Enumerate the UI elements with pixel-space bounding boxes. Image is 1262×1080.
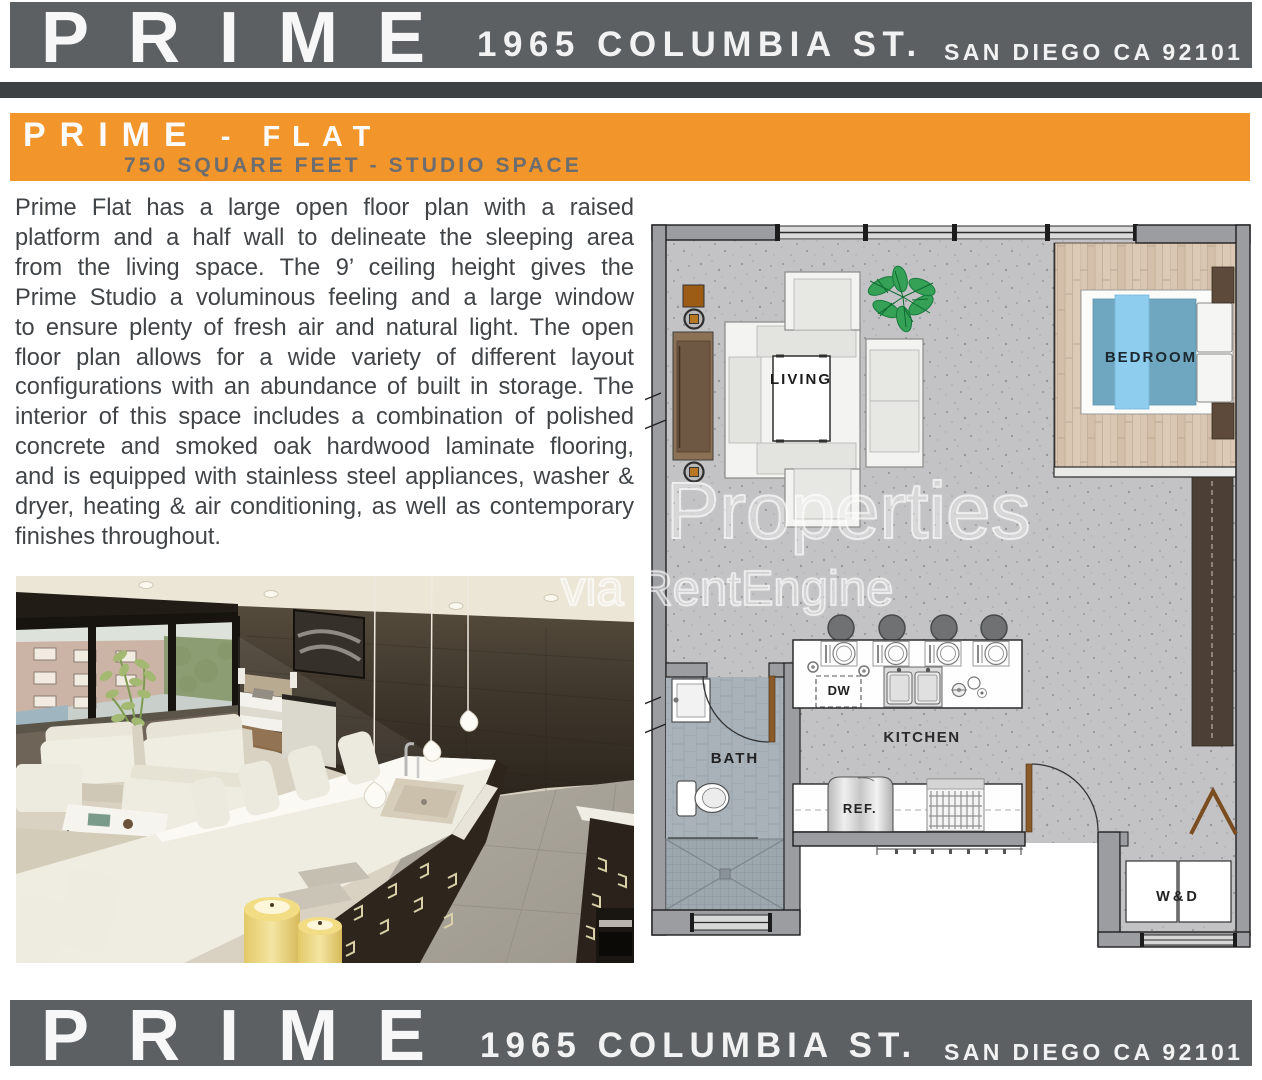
svg-text:KITCHEN: KITCHEN	[883, 729, 960, 746]
svg-text:LIVING: LIVING	[770, 371, 832, 388]
svg-text:BEDROOM: BEDROOM	[1105, 349, 1197, 366]
svg-text:W&D: W&D	[1156, 889, 1200, 905]
svg-text:BATH: BATH	[711, 750, 760, 767]
svg-text:REF.: REF.	[843, 801, 877, 816]
svg-text:DW: DW	[828, 683, 851, 698]
